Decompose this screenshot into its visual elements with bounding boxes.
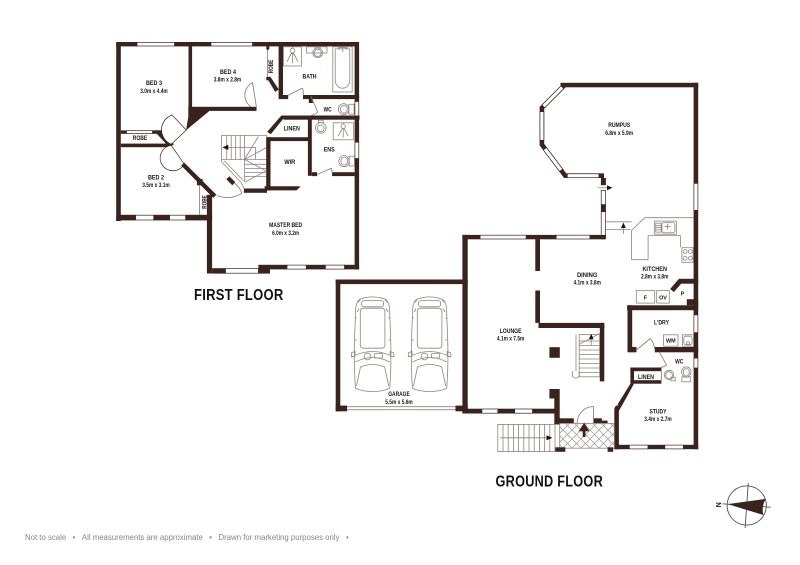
svg-text:ROBE: ROBE — [202, 195, 209, 209]
svg-text:N: N — [714, 502, 721, 507]
svg-text:STUDY: STUDY — [650, 408, 667, 415]
svg-text:BATH: BATH — [303, 73, 317, 80]
svg-text:3.8m x 2.8m: 3.8m x 2.8m — [214, 78, 242, 84]
svg-text:RUMPUS: RUMPUS — [608, 122, 630, 129]
svg-text:Not to scale • All measure: Not to scale • All measurements are appr… — [25, 533, 349, 542]
svg-text:3.0m x 4.4m: 3.0m x 4.4m — [140, 89, 168, 95]
svg-text:WIR: WIR — [284, 159, 295, 166]
svg-text:OV: OV — [659, 296, 667, 302]
svg-text:4.1m x 3.8m: 4.1m x 3.8m — [573, 281, 601, 287]
svg-text:5.5m x 5.6m: 5.5m x 5.6m — [385, 400, 413, 406]
svg-text:WC: WC — [324, 106, 332, 113]
svg-text:MASTER BED: MASTER BED — [269, 222, 302, 229]
svg-text:DINING: DINING — [577, 272, 598, 279]
svg-text:6.8m x 5.9m: 6.8m x 5.9m — [605, 131, 633, 137]
svg-text:2.8m x 3.8m: 2.8m x 3.8m — [641, 275, 669, 281]
svg-text:F: F — [644, 296, 648, 302]
svg-text:LOUNGE: LOUNGE — [500, 328, 522, 335]
svg-text:LINEN: LINEN — [284, 125, 300, 132]
svg-text:BED 3: BED 3 — [146, 80, 162, 87]
svg-text:FIRST FLOOR: FIRST FLOOR — [194, 287, 284, 304]
svg-text:GARAGE: GARAGE — [388, 391, 410, 398]
svg-text:L'DRY: L'DRY — [654, 319, 669, 326]
svg-text:ENS: ENS — [324, 146, 335, 153]
svg-text:WM: WM — [666, 339, 676, 345]
svg-text:KITCHEN: KITCHEN — [642, 266, 667, 273]
svg-text:3.5m x 3.1m: 3.5m x 3.1m — [142, 183, 170, 189]
svg-text:WC: WC — [675, 358, 683, 365]
svg-text:4.1m x 7.5m: 4.1m x 7.5m — [497, 337, 525, 343]
svg-text:ROBE: ROBE — [268, 60, 275, 74]
svg-text:LINEN: LINEN — [638, 374, 654, 381]
svg-text:BED 4: BED 4 — [220, 69, 236, 76]
svg-text:3.4m x 2.7m: 3.4m x 2.7m — [644, 417, 672, 423]
svg-text:BED 2: BED 2 — [148, 175, 164, 182]
svg-text:P: P — [681, 291, 685, 297]
svg-text:6.0m x 3.2m: 6.0m x 3.2m — [272, 231, 299, 237]
svg-text:ROBE: ROBE — [133, 135, 148, 142]
svg-text:GROUND FLOOR: GROUND FLOOR — [496, 474, 604, 491]
